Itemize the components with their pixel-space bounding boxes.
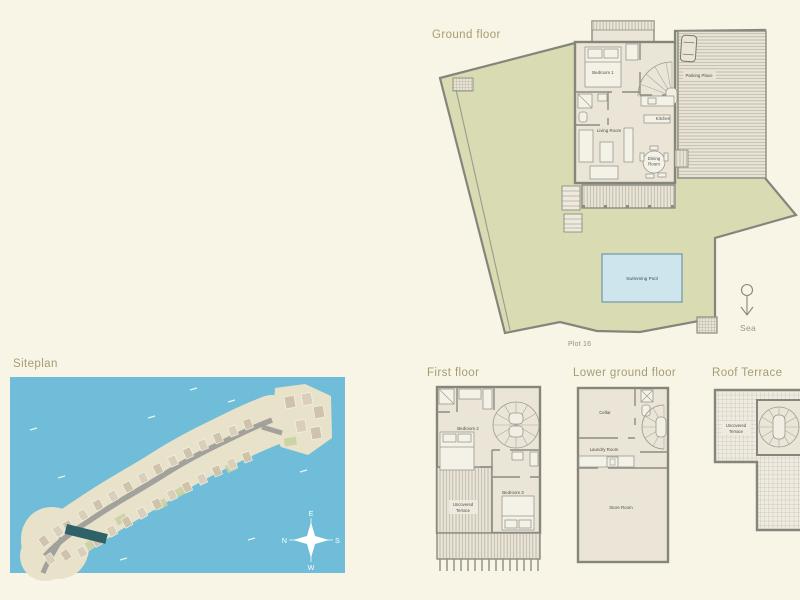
compass-west: W <box>308 563 315 572</box>
side-balcony <box>675 150 688 167</box>
parking-label: Parking Place <box>685 73 713 78</box>
ff-terrace-label-2: Terrace <box>456 508 471 513</box>
garden-steps <box>453 78 473 91</box>
ground-floor-title: Ground floor <box>432 29 501 41</box>
compass-north: N <box>282 536 287 545</box>
floorplan-sheet: Ground floor Parking Place <box>0 0 800 600</box>
dining-room-label-1: Dining <box>648 156 661 161</box>
lower-ground-title: Lower ground floor <box>573 367 676 379</box>
cellar-label: Cellar <box>599 410 611 415</box>
garden-stairs <box>562 186 582 232</box>
roof-terrace-title: Roof Terrace <box>712 367 782 379</box>
parking-area: Parking Place <box>678 31 766 178</box>
dining-room-label-2: Room <box>648 162 660 167</box>
laundry-label: Laundry Room <box>590 447 619 452</box>
compass-east: E <box>309 509 314 518</box>
store-room-label: Store Room <box>609 505 633 510</box>
swimming-pool-label: Swimming Pool <box>626 276 658 281</box>
spiral-stairs-icon-first-floor <box>493 402 539 448</box>
siteplan-title: Siteplan <box>13 358 58 370</box>
bedroom3-label: Bedroom 3 <box>502 490 524 495</box>
swimming-pool: Swimming Pool <box>602 254 682 302</box>
garden-corner-structure <box>697 317 717 333</box>
first-floor-title: First floor <box>427 367 479 379</box>
sea-direction-indicator: Sea <box>740 285 756 334</box>
first-floor-deck <box>437 533 540 559</box>
lower-ground-footprint <box>578 388 668 562</box>
living-room-label: Living Room <box>597 128 622 133</box>
ff-terrace-label-1: Uncovered <box>453 502 474 507</box>
compass-south: S <box>335 536 340 545</box>
roof-terrace-section: Roof Terrace Uncovered Terrace <box>712 367 800 530</box>
sea-indicator-circle <box>742 285 753 296</box>
bedroom2-label: Bedroom 2 <box>457 426 479 431</box>
roof-terrace-label-2: Terrace <box>729 429 744 434</box>
floorplan-canvas: Ground floor Parking Place <box>0 0 800 600</box>
spiral-stairs-icon-roof <box>759 407 799 447</box>
deck-piles <box>440 559 538 571</box>
bedroom1-label: Bedroom 1 <box>592 70 614 75</box>
plot-number-label: Plot 16 <box>568 341 591 348</box>
ground-floor-section: Ground floor Parking Place <box>432 21 796 348</box>
entry-balcony-deck <box>592 21 654 30</box>
siteplan-section: Siteplan <box>8 358 345 592</box>
kitchen-label: Kitchen <box>656 116 671 121</box>
first-floor-section: First floor <box>427 367 540 571</box>
roof-terrace-label-1: Uncovered <box>726 423 747 428</box>
lower-ground-floor-section: Lower ground floor Cellar Laundry Room S… <box>573 367 676 562</box>
car-icon <box>680 35 697 62</box>
sea-label: Sea <box>740 323 756 333</box>
ground-floor-building: Bedroom 1 Living Room Kitchen Dining Roo… <box>575 21 677 183</box>
